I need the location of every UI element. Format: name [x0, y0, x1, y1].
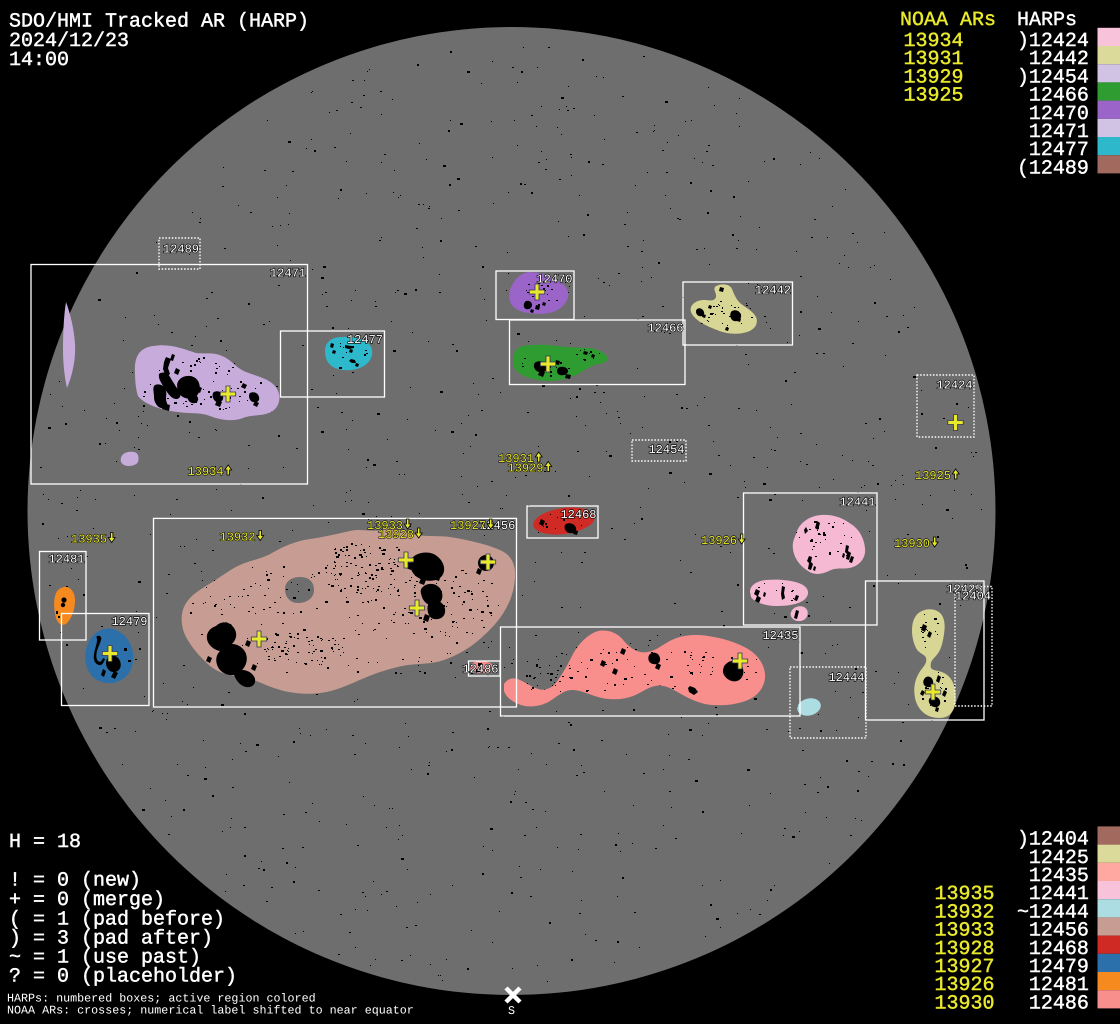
svg-text:12424: 12424	[936, 379, 972, 393]
svg-text:): )	[1017, 66, 1029, 89]
svg-text:NOAA ARs: crosses; numerical l: NOAA ARs: crosses; numerical label shift…	[7, 1004, 414, 1018]
svg-text:13935: 13935	[71, 533, 107, 547]
svg-text:13925: 13925	[915, 469, 951, 483]
svg-text:(: (	[1017, 157, 1029, 180]
svg-text:12441: 12441	[839, 496, 875, 510]
svg-text:13930: 13930	[935, 992, 995, 1015]
svg-text:13932: 13932	[220, 531, 256, 545]
svg-text:NOAA ARs: NOAA ARs	[900, 9, 996, 32]
svg-text:13926: 13926	[701, 534, 737, 548]
svg-text:12489: 12489	[1029, 157, 1089, 180]
svg-text:12477: 12477	[347, 333, 383, 347]
svg-text:12442: 12442	[755, 284, 791, 298]
svg-text:): )	[1017, 30, 1029, 53]
svg-text:13930: 13930	[894, 537, 930, 551]
svg-text:12486: 12486	[462, 662, 498, 676]
svg-text:13925: 13925	[904, 85, 964, 108]
svg-text:~: ~	[1017, 901, 1029, 924]
svg-text:12468: 12468	[560, 508, 596, 522]
svg-text:12481: 12481	[48, 553, 84, 567]
svg-text:S: S	[508, 1004, 515, 1018]
svg-text:12444: 12444	[828, 671, 864, 685]
svg-text:12404: 12404	[955, 590, 991, 604]
svg-text:12486: 12486	[1029, 992, 1089, 1015]
svg-text:13934: 13934	[188, 465, 224, 479]
svg-text:13929: 13929	[508, 462, 544, 476]
svg-text:13928: 13928	[378, 528, 414, 542]
svg-text:13927: 13927	[450, 519, 486, 533]
svg-text:14:00: 14:00	[9, 49, 69, 72]
svg-text:H = 18: H = 18	[9, 831, 81, 854]
svg-text:12454: 12454	[648, 443, 684, 457]
svg-text:12479: 12479	[111, 615, 147, 629]
svg-text:12489: 12489	[163, 243, 199, 257]
svg-text:HARPs: HARPs	[1017, 9, 1077, 32]
svg-text:12435: 12435	[762, 629, 798, 643]
svg-text:): )	[1017, 829, 1029, 852]
svg-text:12471: 12471	[270, 267, 306, 281]
svg-text:12466: 12466	[647, 322, 683, 336]
svg-text:12470: 12470	[536, 273, 572, 287]
svg-text:? = 0 (placeholder): ? = 0 (placeholder)	[9, 966, 237, 989]
